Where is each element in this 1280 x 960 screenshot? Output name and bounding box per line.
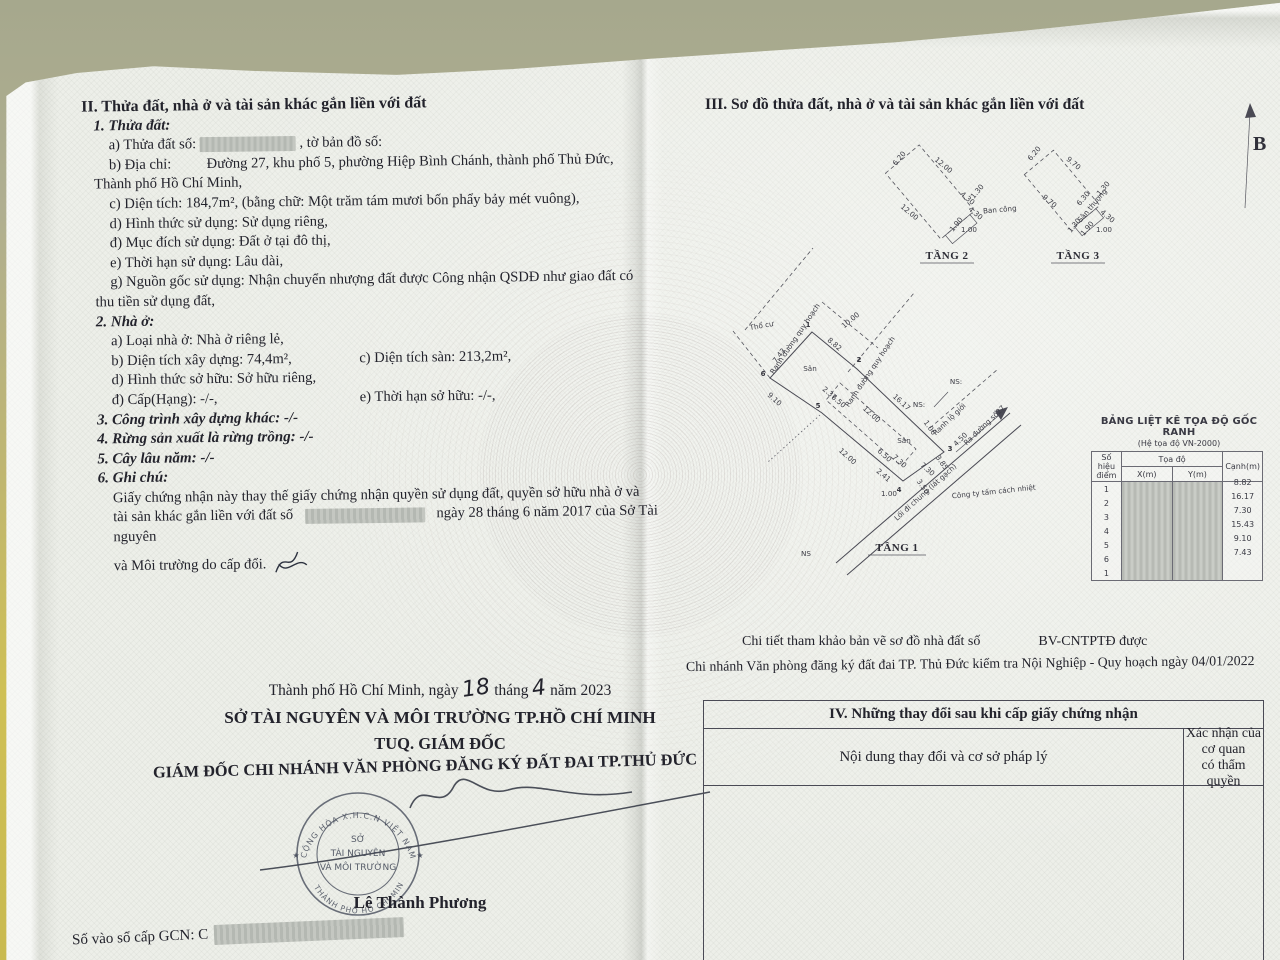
plan-dim-label: 10.00 bbox=[840, 310, 862, 330]
redacted-y-cell bbox=[1172, 552, 1223, 566]
section-iv-table: IV. Những thay đổi sau khi cấp giấy chứn… bbox=[703, 700, 1264, 960]
handwritten-day: 18 bbox=[463, 687, 491, 691]
floor-plan-svg: B 6.2012.0012.004.304.301.301.901.00Ban … bbox=[680, 85, 1280, 685]
plan-dim-label: Sân bbox=[803, 364, 817, 373]
stamp-center-line-2: TÀI NGUYÊN bbox=[330, 847, 386, 859]
plan-dim-label: 6.50 bbox=[830, 392, 848, 409]
stamp-center-line-1: SỞ bbox=[351, 833, 365, 845]
coord-table-subtitle: (Hệ tọa độ VN-2000) bbox=[1088, 439, 1270, 448]
section-iv-body bbox=[704, 786, 1263, 960]
plan-dim-label: 2.41 bbox=[875, 466, 893, 483]
floor2-labels: 6.2012.0012.004.304.301.301.901.00Ban cô… bbox=[890, 149, 1016, 234]
floor2-title: TẦNG 2 bbox=[925, 249, 968, 262]
plan-dim-label: 4.30 bbox=[1099, 207, 1117, 224]
plan-dim-label: 6.20 bbox=[890, 149, 907, 167]
plan-dim-label: 6.20 bbox=[1025, 144, 1042, 162]
section-iv-title: IV. Những thay đổi sau khi cấp giấy chứn… bbox=[704, 701, 1263, 729]
plan-dim-label: 9.70 bbox=[1065, 154, 1083, 171]
plan-dim-label: Thổ cư bbox=[748, 319, 775, 332]
north-label: B bbox=[1253, 133, 1266, 155]
coord-col-y: Y(m) bbox=[1172, 467, 1223, 482]
handwritten-month: 4 bbox=[532, 688, 546, 690]
plan-dim-label: Công ty tấm cách nhiệt bbox=[951, 483, 1036, 501]
redacted-x-cell bbox=[1121, 524, 1172, 538]
plan-dim-label: 1.30 bbox=[968, 182, 985, 200]
signer-name: Lê Thành Phương bbox=[300, 893, 540, 913]
redacted-y-cell bbox=[1172, 482, 1223, 497]
plan-dim-label: Ban công bbox=[983, 204, 1017, 216]
plan-dim-label: 1.30 bbox=[1094, 179, 1111, 197]
coord-row: 1 bbox=[1092, 566, 1263, 581]
plan-dim-label: 12.00 bbox=[899, 202, 921, 222]
section-iv-col1-header: Nội dung thay đổi và cơ sở pháp lý bbox=[704, 729, 1184, 785]
line-thoi-han-so-huu: e) Thời hạn sở hữu: -/-, bbox=[360, 386, 496, 407]
redacted-y-cell bbox=[1172, 566, 1223, 581]
plan-dim-label: 6.50 bbox=[876, 446, 894, 464]
plan-dim-label: 7.30 bbox=[891, 452, 909, 470]
redacted-y-cell bbox=[1172, 496, 1223, 510]
coord-col-coords: Tọa độ bbox=[1121, 452, 1222, 467]
floor3-plan: 6.209.709.706.30Sân thượng1.304.301.301.… bbox=[1024, 144, 1117, 263]
plan-vertex-number: 4 bbox=[897, 486, 902, 494]
plan-dim-label: 12.00 bbox=[861, 404, 883, 425]
plan-dim-label: NS: bbox=[913, 400, 925, 409]
floor3-title: TẦNG 3 bbox=[1056, 249, 1099, 262]
plan-dim-label: 1.00 bbox=[961, 225, 977, 234]
section-iv-col2-header: Xác nhận của cơ quan có thẩm quyền bbox=[1184, 729, 1263, 785]
issuer-line-1: SỞ TÀI NGUYÊN VÀ MÔI TRƯỜNG TP.HỒ CHÍ MI… bbox=[160, 708, 720, 728]
ns-tick bbox=[934, 392, 948, 407]
ghi-chu-line-3: và Môi trường do cấp đổi. bbox=[114, 541, 672, 580]
stamp-center-line-3: VÀ MÔI TRƯỜNG bbox=[320, 861, 396, 873]
redacted-y-cell bbox=[1172, 524, 1223, 538]
plan-dim-label: 9.10 bbox=[766, 390, 784, 408]
plan-dim-label: 7.30 bbox=[919, 460, 937, 478]
handwritten-initial-mark bbox=[270, 545, 312, 578]
floor1-plan: Thổ cưRanh đường quy hoạchRanh đường quy… bbox=[733, 248, 1036, 575]
redacted-x-cell bbox=[1121, 538, 1172, 552]
floor1-title: TẦNG 1 bbox=[875, 541, 918, 554]
coordinate-table-box: BẢNG LIỆT KÊ TỌA ĐỘ GỐC RANH (Hệ tọa độ … bbox=[1088, 416, 1270, 581]
lower-left-extension bbox=[768, 415, 820, 462]
plan-dim-label: 1.00 bbox=[881, 489, 897, 498]
plan-vertex-number: 5 bbox=[816, 402, 821, 410]
north-arrow: B bbox=[1245, 103, 1266, 208]
redacted-x-cell bbox=[1121, 566, 1172, 581]
stamp-star-right: ★ bbox=[416, 851, 423, 860]
line-dien-tich-san: c) Diện tích sàn: 213,2m², bbox=[359, 347, 511, 368]
coord-col-x: X(m) bbox=[1121, 467, 1172, 482]
redacted-y-cell bbox=[1172, 538, 1223, 552]
plan-dim-label: 9.70 bbox=[1041, 192, 1059, 209]
redacted-x-cell bbox=[1121, 510, 1172, 524]
plan-vertex-number: 6 bbox=[761, 370, 766, 378]
floor2-plan: 6.2012.0012.004.304.301.301.901.00Ban cô… bbox=[886, 145, 1017, 263]
plan-dim-label: 16.17 bbox=[891, 392, 912, 412]
plan-dim-label: NS: bbox=[950, 377, 962, 386]
coord-table-title: BẢNG LIỆT KÊ TỌA ĐỘ GỐC RANH bbox=[1088, 416, 1270, 438]
plan-dim-label: NS bbox=[801, 549, 811, 558]
plan-dim-label: Sân bbox=[897, 436, 911, 445]
plan-vertex-number: 3 bbox=[948, 445, 953, 453]
plan-reference-note-1: Chi tiết tham khảo bản vẽ sơ đồ nhà đất … bbox=[742, 634, 1147, 650]
floor1-labels: Thổ cưRanh đường quy hoạchRanh đường quy… bbox=[748, 302, 1036, 558]
redacted-parcel-number bbox=[200, 136, 296, 152]
alley-line-2 bbox=[847, 425, 1021, 575]
redacted-x-cell bbox=[1121, 482, 1172, 497]
plan-vertex-number: 2 bbox=[857, 356, 862, 364]
redacted-x-cell bbox=[1121, 552, 1172, 566]
redacted-x-cell bbox=[1121, 496, 1172, 510]
issue-date-line: Thành phố Hồ Chí Minh, ngày 18 tháng 4 n… bbox=[205, 682, 675, 700]
section-ii-block: II. Thửa đất, nhà ở và tài sản khác gắn … bbox=[81, 90, 672, 580]
redacted-old-certificate-number bbox=[305, 507, 425, 523]
plan-dim-label: Ra đường số27 bbox=[962, 403, 1007, 447]
redacted-y-cell bbox=[1172, 510, 1223, 524]
scanned-certificate-page: II. Thửa đất, nhà ở và tài sản khác gắn … bbox=[0, 0, 1280, 960]
stamp-star-left: ★ bbox=[292, 851, 299, 860]
ghi-chu-line-2: tài sản khác gắn liền với đất số ngày 28… bbox=[113, 502, 671, 548]
plan-vertex-number: 1 bbox=[806, 321, 811, 329]
coord-col-edge: Cạnh(m) bbox=[1223, 452, 1263, 482]
floor3-labels: 6.209.709.706.30Sân thượng1.304.301.301.… bbox=[1025, 144, 1116, 237]
section-iv-header-row: Nội dung thay đổi và cơ sở pháp lý Xác n… bbox=[704, 729, 1263, 786]
plan-dim-label: 12.00 bbox=[837, 446, 859, 467]
coord-table: Số hiệuđiểm Tọa độ Cạnh(m) X(m) Y(m) 18.… bbox=[1091, 451, 1263, 581]
plan-dim-label: 1.00 bbox=[1096, 225, 1112, 234]
coord-row: 67.43 bbox=[1092, 552, 1263, 566]
plan-dim-label: Ranh đường quy hoạch bbox=[843, 335, 897, 409]
coord-col-point: Số hiệuđiểm bbox=[1092, 452, 1122, 482]
